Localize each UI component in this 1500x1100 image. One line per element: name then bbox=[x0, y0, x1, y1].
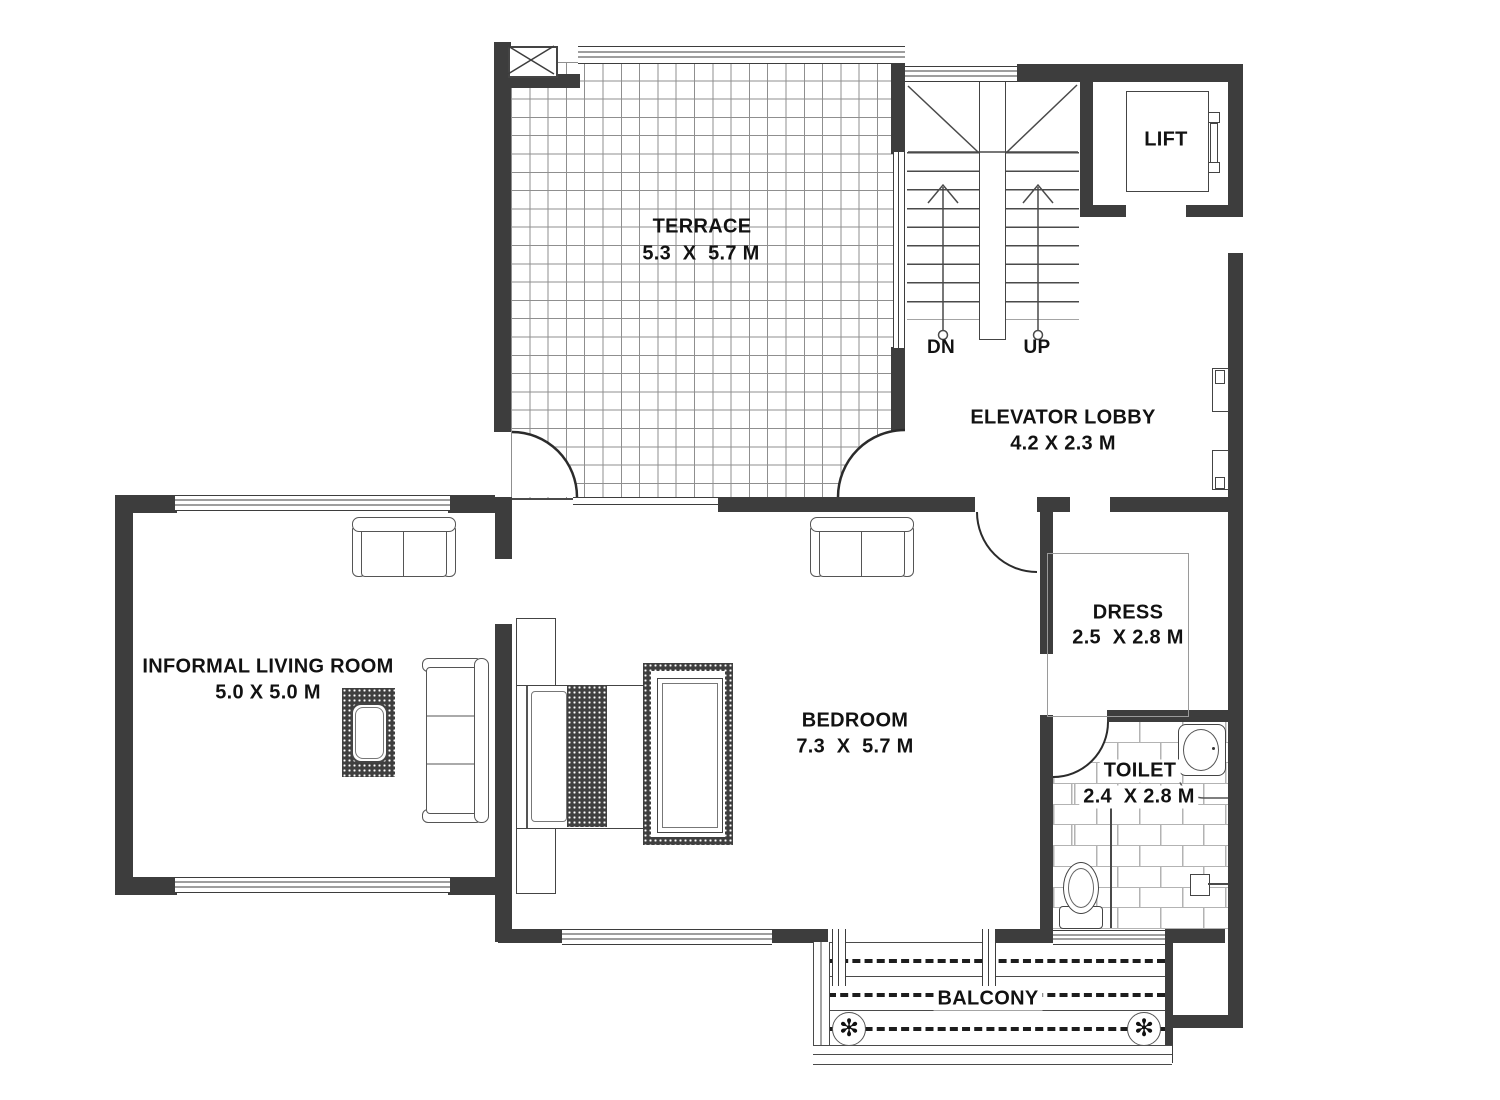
sofa-back bbox=[810, 517, 914, 532]
stair-landing-diagonal-right bbox=[1007, 85, 1077, 152]
brick-course bbox=[1053, 825, 1228, 846]
dress-dims: 2.5 X 2.8 M bbox=[1072, 627, 1183, 650]
window-bedroom-bottom bbox=[562, 929, 772, 945]
balcony-railing-bottom bbox=[813, 1045, 1172, 1065]
wall-lift-left bbox=[1080, 64, 1093, 217]
wall-dress-top bbox=[1110, 497, 1230, 512]
toilet-fixture-connector bbox=[1208, 883, 1228, 885]
wall-bedroom-left-upper bbox=[495, 497, 512, 559]
bedroom-label: BEDROOM bbox=[802, 710, 909, 733]
bedroom-dims: 7.3 X 5.7 M bbox=[796, 736, 913, 759]
plant-icon: ✻ bbox=[1134, 1017, 1154, 1041]
wall-bedroom-bottom-b bbox=[770, 929, 828, 943]
wall-living-left bbox=[115, 495, 133, 895]
window-toilet-bottom bbox=[1053, 930, 1165, 945]
living-room-dims: 5.0 X 5.0 M bbox=[215, 682, 321, 705]
wall-toilet-bottom-b bbox=[1165, 929, 1225, 943]
lift-label: LIFT bbox=[1144, 129, 1187, 152]
bed-blanket-strip bbox=[567, 685, 607, 827]
lift-door-track bbox=[1210, 123, 1218, 163]
stair-center-divider bbox=[979, 80, 1006, 340]
wall-lift-bottom-left bbox=[1080, 205, 1126, 217]
sofa-back bbox=[352, 517, 456, 532]
terrace-dims: 5.3 X 5.7 M bbox=[642, 243, 759, 266]
low-wall-terrace-bedroom bbox=[573, 497, 718, 505]
sofa-seats bbox=[361, 528, 447, 577]
bed-foot-bench-inner bbox=[662, 683, 718, 828]
balcony-label: BALCONY bbox=[934, 988, 1043, 1011]
living-room-label: INFORMAL LIVING ROOM bbox=[142, 656, 393, 679]
washbasin-bowl bbox=[1183, 729, 1219, 771]
window-living-bottom bbox=[175, 877, 450, 893]
lobby-bedroom-door-arc bbox=[977, 512, 1037, 572]
lift-door-end-top bbox=[1208, 112, 1220, 123]
wall-living-bottom-right bbox=[448, 877, 495, 895]
stair-down-label: DN bbox=[927, 337, 955, 359]
window-stair-terrace bbox=[893, 152, 905, 348]
toilet-partition bbox=[1110, 800, 1112, 928]
lobby-niche-tick-top bbox=[1215, 370, 1225, 384]
sofa-two-seat-bedroom bbox=[810, 517, 914, 577]
terrace-label: TERRACE bbox=[653, 216, 752, 239]
wall-bottom-right bbox=[1168, 1015, 1243, 1028]
wall-right-upper bbox=[1228, 64, 1243, 217]
wall-lift-bottom-right bbox=[1186, 205, 1228, 217]
stair-flight-down bbox=[907, 152, 979, 320]
wall-stair-left-upper bbox=[891, 62, 905, 154]
sofa-back bbox=[474, 658, 489, 823]
lift-door-end-bottom bbox=[1208, 162, 1220, 173]
wall-bedroom-left-main bbox=[495, 624, 512, 942]
wc-bowl-inner bbox=[1068, 868, 1094, 908]
wc-bowl bbox=[1063, 862, 1099, 914]
lobby-niche-tick-bottom bbox=[1215, 477, 1225, 489]
window-terrace-top bbox=[578, 46, 905, 64]
sofa-two-seat-living bbox=[352, 517, 456, 577]
planter-left: ✻ bbox=[832, 1012, 866, 1046]
coffee-table-inner bbox=[355, 707, 384, 759]
balcony-door-panel-left bbox=[832, 929, 846, 986]
wall-terrace-left bbox=[494, 42, 511, 432]
bed-pillows bbox=[531, 691, 567, 822]
washbasin-tap bbox=[1212, 747, 1215, 750]
toilet-label: TOILET bbox=[1100, 760, 1181, 783]
sofa-three-seat-living bbox=[422, 658, 489, 823]
bed-foot-bench bbox=[657, 678, 723, 833]
window-stairs-top bbox=[905, 66, 1017, 82]
wall-stair-left-lower bbox=[891, 347, 905, 431]
deck-line bbox=[828, 1010, 1165, 1027]
wall-bedroom-bottom-a bbox=[498, 929, 564, 943]
coffee-table bbox=[351, 703, 388, 763]
column-cross-box bbox=[508, 46, 558, 78]
balcony-door-panel-right bbox=[982, 929, 996, 986]
window-living-top bbox=[175, 495, 450, 511]
terrace-tile-floor bbox=[511, 62, 893, 500]
planter-right: ✻ bbox=[1127, 1012, 1161, 1046]
toilet-dims: 2.4 X 2.8 M bbox=[1079, 786, 1198, 809]
stair-up-label: UP bbox=[1024, 337, 1051, 359]
wall-living-corner-bl bbox=[115, 877, 177, 895]
stair-flight-up bbox=[1004, 152, 1079, 320]
deck-line bbox=[828, 959, 1165, 976]
dress-label: DRESS bbox=[1093, 602, 1163, 625]
bed-headboard-line bbox=[526, 686, 528, 828]
nightstand-bottom bbox=[516, 827, 556, 894]
wall-living-top-right bbox=[448, 495, 495, 513]
toilet-wall-fixture bbox=[1190, 874, 1210, 896]
wall-top-right bbox=[1017, 64, 1243, 82]
wall-right-main bbox=[1228, 253, 1243, 1015]
sofa-seats bbox=[819, 528, 905, 577]
stair-landing-diagonal-left bbox=[908, 86, 978, 152]
sofa-seats bbox=[426, 667, 479, 814]
wall-bedroom-top-a bbox=[718, 497, 975, 512]
nightstand-top bbox=[516, 618, 556, 686]
elevator-lobby-dims: 4.2 X 2.3 M bbox=[1010, 433, 1116, 456]
washbasin bbox=[1178, 724, 1226, 776]
wall-toilet-left bbox=[1040, 715, 1053, 943]
plant-icon: ✻ bbox=[839, 1017, 859, 1041]
elevator-lobby-label: ELEVATOR LOBBY bbox=[970, 407, 1155, 430]
deck-line bbox=[828, 1027, 1165, 1044]
floor-plan: ✻ ✻ bbox=[0, 0, 1500, 1100]
